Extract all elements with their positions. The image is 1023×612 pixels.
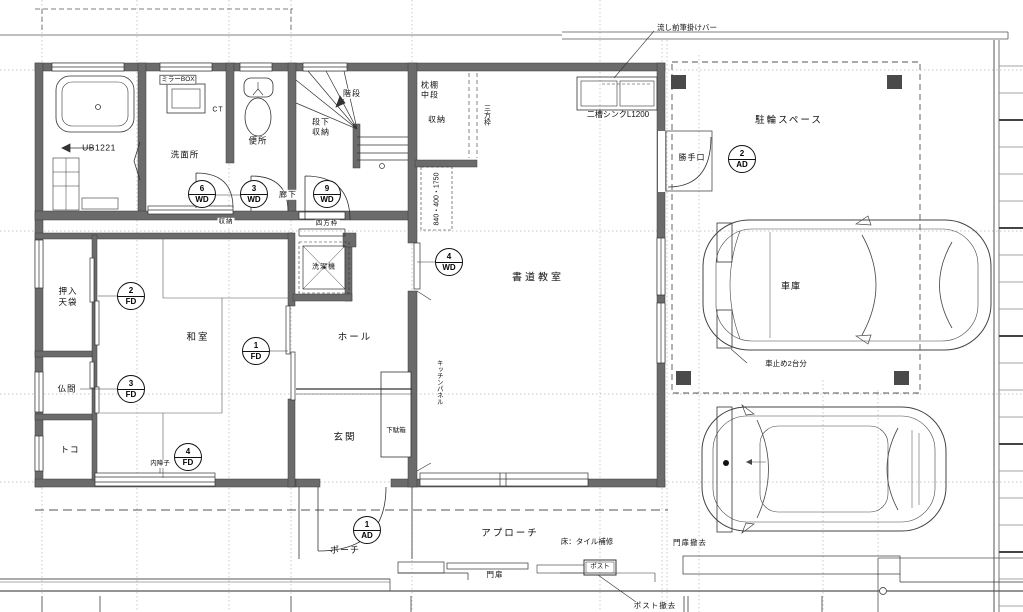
- label-tokonoma: トコ: [60, 444, 79, 455]
- symbol-ad2: 2AD: [728, 145, 756, 173]
- label-shelf-storage: 枕棚 中段: [421, 81, 439, 102]
- label-gate: 門扉: [487, 570, 504, 580]
- label-washing-machine: 洗濯機: [312, 262, 336, 271]
- floor-plan-drawing: [0, 0, 1023, 612]
- label-garage: 車庫: [780, 281, 802, 293]
- symbol-ad1: 1AD: [353, 516, 381, 544]
- label-mirror-box: ミラーBOX: [159, 75, 196, 85]
- toilet: [244, 78, 273, 136]
- shoe-cabinet: [381, 372, 411, 457]
- label-three-side-frame: 三方枠: [484, 105, 491, 126]
- label-dimensions: 840・400・1750: [432, 173, 441, 226]
- label-calligraphy-room: 書道教室: [512, 272, 564, 285]
- label-corridor: 廊下: [278, 190, 298, 200]
- symbol-wd9: 9WD: [313, 180, 341, 208]
- label-oshiire: 押入 天袋: [58, 286, 77, 308]
- floor-plan-canvas: UB1221 洗面所 便所 ミラーBOX CT 階段 段下 収納 枕棚 中段 収…: [0, 0, 1023, 612]
- porch-and-gate: [299, 487, 1023, 602]
- label-toilet: 便所: [248, 135, 267, 146]
- label-porch: ポーチ: [330, 545, 360, 557]
- symbol-fd1: 1FD: [242, 337, 270, 365]
- label-brush-bar: 流し前筆掛けバー: [657, 23, 717, 33]
- label-shoe-cabinet: 下駄箱: [385, 427, 407, 435]
- label-understair-storage: 段下 収納: [312, 118, 330, 139]
- label-mailbox: ポスト: [590, 563, 610, 571]
- car-top-view-1: [703, 216, 991, 350]
- symbol-fd2: 2FD: [117, 282, 145, 310]
- symbol-wd4: 4WD: [435, 248, 463, 276]
- label-inner-shoji: 内障子: [149, 460, 171, 468]
- symbol-fd3: 3FD: [117, 375, 145, 403]
- symbol-wd3: 3WD: [240, 180, 268, 208]
- label-butsuma: 仏間: [57, 383, 76, 394]
- label-gate-removal: 門扉撤去: [673, 538, 707, 548]
- label-small-closet: 収納: [218, 218, 235, 226]
- label-stairs: 階段: [342, 89, 362, 99]
- label-ub1221: UB1221: [82, 142, 116, 153]
- symbol-wd6: 6WD: [188, 180, 216, 208]
- walls: [35, 63, 665, 487]
- label-wheel-stop: 車止め2台分: [764, 359, 808, 369]
- label-tile-repair: 床：タイル補修: [561, 537, 614, 547]
- label-four-side-frame: 四方枠: [315, 220, 340, 228]
- label-entrance: 玄関: [333, 432, 356, 444]
- mirror-cabinet: [167, 84, 205, 113]
- label-closet: 収納: [428, 115, 446, 125]
- symbol-fd4: 4FD: [174, 443, 202, 471]
- label-approach: アプローチ: [481, 528, 539, 540]
- grid-lines: [0, 0, 1023, 612]
- carport: [671, 62, 920, 532]
- swing-doors: [134, 131, 712, 551]
- label-mailbox-removal: ポスト撤去: [634, 601, 677, 611]
- label-bicycle-space: 駐輪スペース: [755, 115, 823, 127]
- label-ct: CT: [212, 105, 223, 114]
- block-wall: [994, 40, 1023, 612]
- label-back-door: 勝手口: [678, 153, 707, 163]
- label-sink: 二槽シンクL1200: [587, 110, 649, 120]
- car-top-view-2: [702, 405, 946, 533]
- label-hall: ホール: [338, 332, 373, 344]
- site-boundary-lines: [0, 9, 1023, 612]
- label-japanese-room: 和室: [185, 332, 210, 344]
- label-washroom: 洗面所: [171, 149, 200, 160]
- label-kitchen-panel: キッチンパネル: [435, 359, 442, 405]
